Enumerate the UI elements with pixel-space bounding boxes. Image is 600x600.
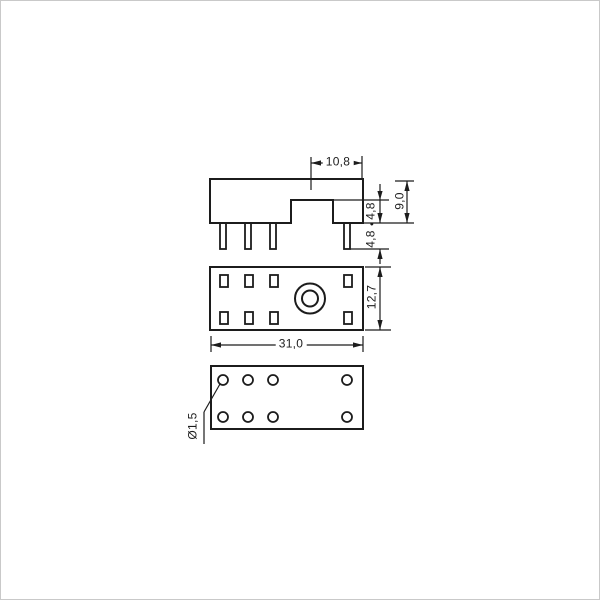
solder-hole bbox=[218, 412, 228, 422]
contact-slot bbox=[344, 312, 352, 324]
bottom-view bbox=[211, 366, 363, 429]
dim-overall-height-label: 9,0 bbox=[394, 192, 407, 210]
dim-body-width-label: 31,0 bbox=[276, 338, 307, 351]
solder-hole bbox=[342, 375, 352, 385]
pin bbox=[270, 223, 276, 249]
pin bbox=[344, 223, 350, 249]
arrowhead-down bbox=[377, 320, 382, 330]
arrowhead-right bbox=[353, 342, 363, 347]
contact-slot bbox=[344, 275, 352, 287]
side-view bbox=[210, 179, 363, 249]
arrowhead-left bbox=[311, 160, 321, 165]
arrowhead-up bbox=[377, 267, 382, 277]
contact-slot bbox=[270, 312, 278, 324]
arrowhead-down bbox=[404, 213, 409, 223]
socket-outline bbox=[210, 267, 363, 330]
pin bbox=[220, 223, 226, 249]
base-outline bbox=[211, 366, 363, 429]
solder-hole bbox=[218, 375, 228, 385]
contact-slot bbox=[220, 312, 228, 324]
dim-notch-height-label: 4,8 bbox=[365, 202, 378, 220]
arrowhead-up bbox=[404, 181, 409, 191]
arrowhead-right bbox=[352, 160, 362, 165]
arrowhead-up bbox=[377, 249, 382, 259]
arrowhead-down bbox=[377, 191, 382, 200]
dim-pin-length bbox=[350, 249, 389, 264]
dim-body-depth-label: 12,7 bbox=[366, 285, 379, 310]
contact-slot bbox=[220, 275, 228, 287]
contact-slot bbox=[245, 312, 253, 324]
pin bbox=[245, 223, 251, 249]
solder-hole bbox=[268, 412, 278, 422]
solder-hole bbox=[243, 375, 253, 385]
drawing-canvas: 10,8 9,0 4,8 • 4,8 12,7 31,0 Ø1,5 bbox=[0, 0, 600, 600]
center-hole-inner bbox=[302, 291, 318, 307]
dim-pin-length-label: 4,8 bbox=[365, 230, 378, 248]
arrowhead-down bbox=[377, 213, 382, 223]
solder-hole bbox=[243, 412, 253, 422]
contact-slot bbox=[245, 275, 253, 287]
arrowhead-left bbox=[211, 342, 221, 347]
solder-hole bbox=[342, 412, 352, 422]
top-view bbox=[210, 267, 363, 330]
solder-hole bbox=[268, 375, 278, 385]
drawing-linework bbox=[0, 0, 600, 600]
contact-slot bbox=[270, 275, 278, 287]
dim-top-width-label: 10,8 bbox=[323, 156, 354, 169]
body-profile-outline bbox=[210, 179, 363, 223]
hole-diameter-label: Ø1,5 bbox=[187, 412, 200, 439]
